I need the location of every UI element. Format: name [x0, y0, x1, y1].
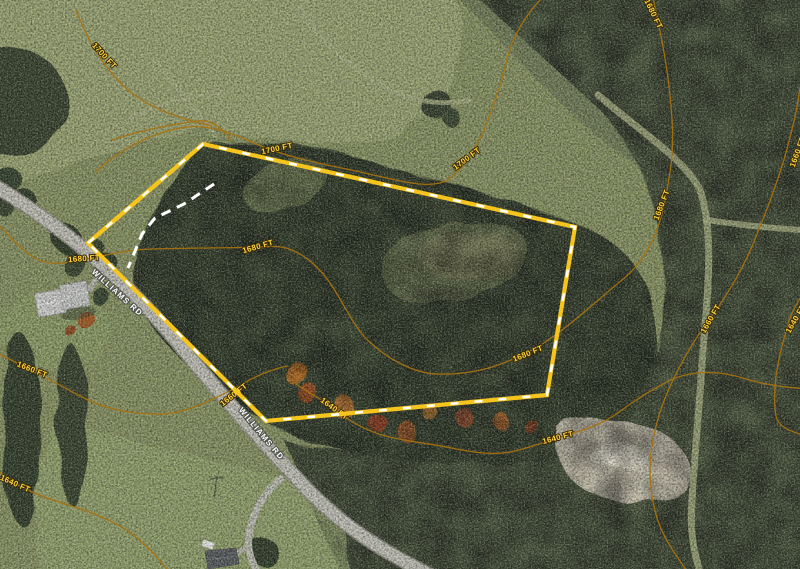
- texture-overlay: [0, 0, 800, 569]
- aerial-map-svg: 1700 FT1700 FT1700 FT1680 FT1680 FT1660 …: [0, 0, 800, 569]
- map-canvas[interactable]: 1700 FT1700 FT1700 FT1680 FT1680 FT1660 …: [0, 0, 800, 569]
